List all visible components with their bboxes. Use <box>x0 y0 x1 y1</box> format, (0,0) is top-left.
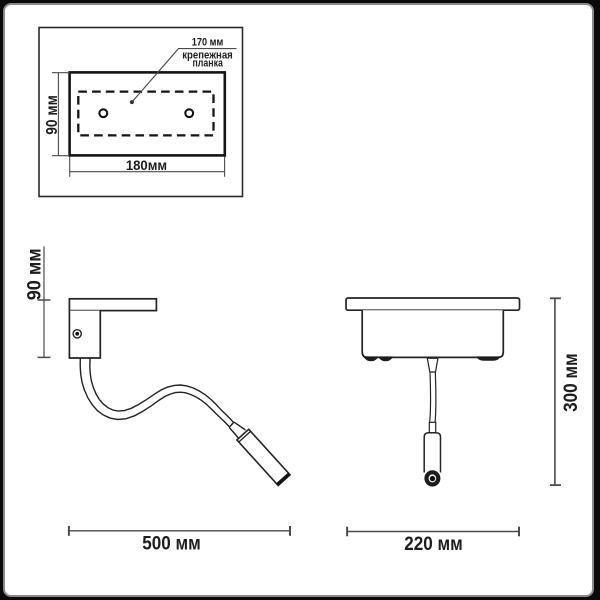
svg-text:500 мм: 500 мм <box>142 534 201 555</box>
svg-text:90 мм: 90 мм <box>25 248 46 300</box>
svg-text:220 мм: 220 мм <box>404 534 463 555</box>
svg-text:170 мм: 170 мм <box>192 37 224 49</box>
svg-text:180мм: 180мм <box>126 157 167 173</box>
svg-text:300 мм: 300 мм <box>561 353 582 412</box>
svg-text:90 мм: 90 мм <box>44 95 61 135</box>
svg-text:планка: планка <box>193 57 224 69</box>
